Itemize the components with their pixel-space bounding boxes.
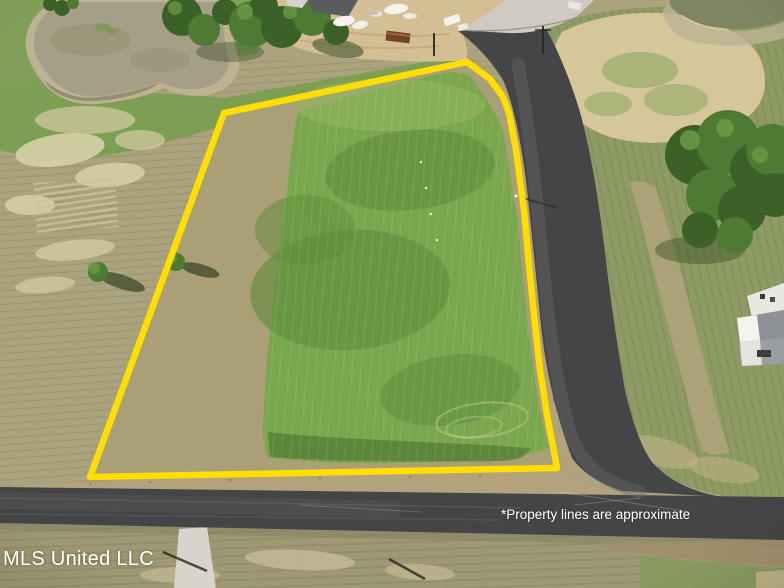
- photo-vignette: [0, 0, 784, 588]
- watermark-text: MLS United LLC: [3, 548, 154, 571]
- aerial-listing-photo: MLS United LLC *Property lines are appro…: [0, 0, 784, 588]
- disclaimer-text: *Property lines are approximate: [501, 507, 690, 522]
- aerial-scene: [0, 0, 784, 588]
